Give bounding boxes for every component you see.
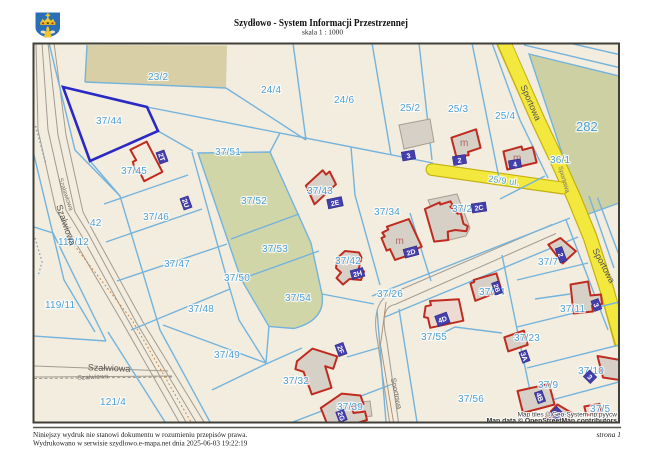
svg-text:Wydrukowano w serwisie szydlow: Wydrukowano w serwisie szydlowo.e-mapa.n… — [33, 440, 248, 448]
svg-text:37/52: 37/52 — [241, 196, 267, 207]
svg-text:skala 1 : 1000: skala 1 : 1000 — [302, 29, 344, 37]
svg-text:25/3: 25/3 — [448, 104, 469, 115]
svg-text:119/11: 119/11 — [45, 300, 76, 311]
svg-text:37/46: 37/46 — [143, 212, 169, 223]
svg-text:m: m — [396, 236, 404, 247]
svg-text:25/4: 25/4 — [495, 111, 516, 122]
svg-text:36/1: 36/1 — [550, 155, 571, 166]
svg-text:121/4: 121/4 — [100, 397, 126, 408]
svg-text:24/4: 24/4 — [261, 85, 282, 96]
svg-text:25/2: 25/2 — [400, 103, 421, 114]
svg-text:37/7: 37/7 — [538, 257, 559, 268]
svg-text:37/56: 37/56 — [458, 394, 484, 405]
svg-text:strona 1: strona 1 — [596, 430, 621, 439]
svg-text:23/2: 23/2 — [148, 72, 169, 83]
svg-text:m: m — [460, 138, 468, 149]
svg-text:37/45: 37/45 — [121, 166, 147, 177]
svg-text:37/9: 37/9 — [538, 380, 559, 391]
svg-text:Szydłowo - System Informacji P: Szydłowo - System Informacji Przestrzenn… — [234, 17, 408, 29]
svg-text:37/32: 37/32 — [283, 376, 309, 387]
svg-text:37/50: 37/50 — [224, 273, 250, 284]
svg-text:Niniejszy wydruk nie stanowi d: Niniejszy wydruk nie stanowi dokumentu w… — [33, 431, 247, 439]
svg-text:37/42: 37/42 — [335, 256, 361, 267]
svg-text:37/34: 37/34 — [374, 207, 400, 218]
svg-text:37/55: 37/55 — [421, 332, 447, 343]
svg-text:37/11: 37/11 — [560, 304, 586, 315]
svg-text:37/49: 37/49 — [214, 350, 240, 361]
svg-text:37/53: 37/53 — [262, 244, 288, 255]
svg-text:37/43: 37/43 — [307, 186, 333, 197]
svg-text:37/47: 37/47 — [164, 259, 190, 270]
svg-text:Szałwiowa: Szałwiowa — [88, 362, 131, 373]
svg-text:37/54: 37/54 — [285, 293, 311, 304]
svg-text:37/23: 37/23 — [514, 333, 540, 344]
svg-text:42: 42 — [90, 218, 102, 229]
svg-text:37/48: 37/48 — [188, 304, 214, 315]
svg-text:37/51: 37/51 — [215, 147, 241, 158]
svg-text:24/6: 24/6 — [334, 95, 355, 106]
svg-text:282: 282 — [576, 119, 598, 134]
svg-text:37/44: 37/44 — [96, 116, 122, 127]
svg-text:37/26: 37/26 — [377, 289, 403, 300]
svg-text:2C: 2C — [474, 205, 484, 213]
